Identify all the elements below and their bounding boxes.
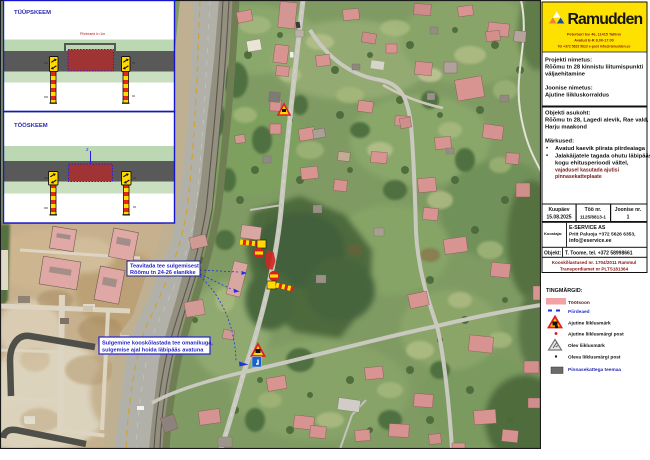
svg-text:Avatud kaevik piirata piirdeai: Avatud kaevik piirata piirdeaiaga (555, 146, 646, 152)
svg-text:Kuupäev: Kuupäev (548, 207, 569, 213)
svg-text:Tel +372 5623 5623 e-post info: Tel +372 5623 5623 e-post info@ramudden.… (558, 45, 631, 49)
svg-text:Töötsoon: Töötsoon (568, 300, 590, 306)
svg-text:Harju maakond: Harju maakond (545, 125, 587, 131)
svg-text:•: • (546, 146, 548, 152)
svg-text:pinnasekatteplaate: pinnasekatteplaate (555, 174, 602, 180)
svg-text:Projekti nimetus:: Projekti nimetus: (545, 58, 592, 64)
svg-text:väljaehitamine: väljaehitamine (545, 72, 586, 78)
svg-text:Pinnasekattega teemaa: Pinnasekattega teemaa (568, 367, 621, 373)
svg-text:Olev liiklusmärk: Olev liiklusmärk (568, 343, 605, 349)
svg-text:info@eservice.ee: info@eservice.ee (569, 238, 612, 244)
svg-text:Joonise nimetus:: Joonise nimetus: (545, 86, 593, 92)
svg-text:kogu ehitusperioodi vältel,: kogu ehitusperioodi vältel, (555, 161, 629, 167)
svg-text:Ajutine liiklusmärgi post: Ajutine liiklusmärgi post (568, 332, 624, 338)
svg-text:•: • (546, 154, 548, 160)
svg-text:E-SERVICE AS: E-SERVICE AS (569, 225, 606, 231)
svg-text:1: 1 (627, 215, 630, 221)
svg-text:Piirdeaed: Piirdeaed (568, 309, 590, 315)
svg-text:Jalakäijatele tagada ohutu läb: Jalakäijatele tagada ohutu läbipääs (555, 154, 650, 160)
svg-text:TINGMÄRGID:: TINGMÄRGID: (546, 287, 583, 294)
svg-text:Priit Paluoja +372 5626 6353,: Priit Paluoja +372 5626 6353, (569, 232, 636, 238)
svg-text:Koostaja:: Koostaja: (544, 231, 562, 236)
svg-text:Ajutine liiklusmärk: Ajutine liiklusmärk (568, 320, 611, 326)
svg-text:vajadusel kasutada ajutisi: vajadusel kasutada ajutisi (555, 168, 620, 174)
svg-text:1125/8813-1: 1125/8813-1 (580, 215, 606, 220)
svg-text:Töö nr.: Töö nr. (585, 207, 602, 213)
svg-text:15.08.2025: 15.08.2025 (546, 215, 571, 221)
svg-text:T. Toome, tel. +372 58998661: T. Toome, tel. +372 58998661 (565, 251, 633, 257)
svg-text:Teavitada tee sulgemisest: Teavitada tee sulgemisest (130, 263, 199, 269)
svg-text:Kooskõlastused nr. 1704/2011 R: Kooskõlastused nr. 1704/2011 Rammul (552, 260, 637, 265)
svg-text:Oleva liiklusmärgi post: Oleva liiklusmärgi post (568, 355, 621, 361)
svg-text:sulgemise ajal hoida läbipääs: sulgemise ajal hoida läbipääs avatuna (102, 348, 204, 354)
svg-text:Rõõmu tn 28 kinnistu liitumisp: Rõõmu tn 28 kinnistu liitumispunkti (545, 65, 644, 71)
svg-text:Ajutine liikluskorraldus: Ajutine liikluskorraldus (545, 93, 609, 99)
svg-text:Objekt:: Objekt: (544, 251, 562, 257)
svg-text:TÖÖSKEEM: TÖÖSKEEM (14, 122, 48, 129)
svg-text:Rõõmu tn 28, Lagedi alevik, Ra: Rõõmu tn 28, Lagedi alevik, Rae vald, (545, 118, 649, 124)
svg-text:Sulgemine kooskõlastada tee om: Sulgemine kooskõlastada tee omanikuga, (102, 340, 213, 346)
svg-text:Peterburi tee 46, 11415 Tallin: Peterburi tee 46, 11415 Tallinn (567, 33, 622, 37)
svg-text:Transpordiamet nr PLTS181364: Transpordiamet nr PLTS181364 (560, 267, 629, 272)
svg-text:Objekti asukoht:: Objekti asukoht: (545, 111, 590, 117)
svg-text:Märkused:: Märkused: (545, 139, 574, 145)
svg-text:Joonise nr.: Joonise nr. (615, 207, 642, 213)
svg-text:Ramudden: Ramudden (568, 11, 643, 28)
svg-text:TÜÜPSKEEM: TÜÜPSKEEM (14, 9, 51, 16)
svg-text:Piirdeaed h=1m: Piirdeaed h=1m (80, 32, 105, 36)
svg-text:Rõõmu tn 24-26 elanikke: Rõõmu tn 24-26 elanikke (130, 270, 196, 276)
svg-text:Avatud E-R 8.00-17.00: Avatud E-R 8.00-17.00 (574, 39, 614, 43)
